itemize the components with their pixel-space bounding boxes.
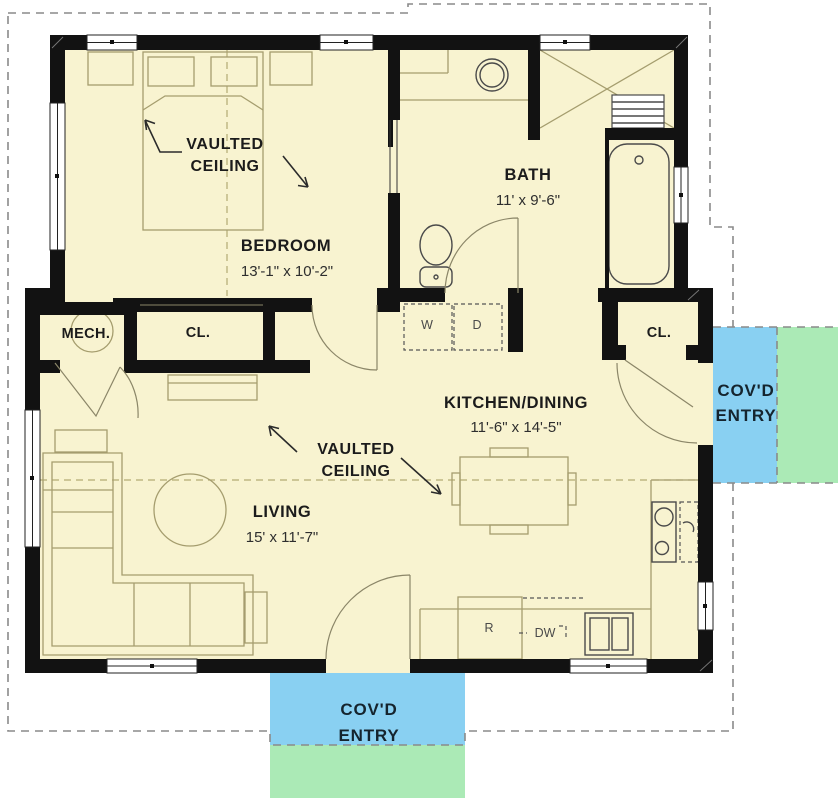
kitchen-dining-dims: 11'-6" x 14'-5": [470, 419, 561, 436]
dishwasher-label: DW: [535, 626, 556, 640]
covd-entry-bottom-label-2: ENTRY: [339, 726, 400, 745]
covered-entry-right: [713, 327, 838, 483]
window: [540, 35, 590, 50]
window: [50, 103, 65, 250]
bedroom-closet-label: CL.: [186, 325, 211, 341]
entry-opening-right: [698, 363, 713, 445]
window: [674, 167, 688, 223]
entry-closet-label: CL.: [647, 325, 672, 341]
living-label: LIVING: [253, 503, 312, 521]
entry-bottom-green-pad: [270, 745, 465, 798]
bath-dims: 11' x 9'-6": [496, 192, 560, 209]
entry-right-green-pad: [777, 327, 838, 483]
vaulted-ceiling-living-label: VAULTED: [317, 441, 394, 458]
bedroom-dims: 13'-1" x 10'-2": [241, 263, 333, 280]
window: [107, 659, 197, 673]
window: [698, 582, 713, 630]
floor-plan: VAULTED CEILING BEDROOM 13'-1" x 10'-2" …: [0, 0, 839, 800]
floor-upper: [50, 35, 688, 302]
floor-plan-svg: VAULTED CEILING BEDROOM 13'-1" x 10'-2" …: [0, 0, 839, 800]
window: [320, 35, 373, 50]
bath-label: BATH: [504, 166, 551, 184]
entry-right-porch: [713, 327, 777, 483]
entry-opening-bottom: [326, 659, 410, 673]
washer-label: W: [421, 318, 433, 332]
window: [87, 35, 137, 50]
refrigerator-label: R: [484, 621, 493, 635]
window: [570, 659, 647, 673]
vaulted-ceiling-bedroom-label-2: CEILING: [190, 158, 259, 175]
covd-entry-bottom-label: COV'D: [340, 700, 397, 719]
window: [25, 410, 40, 547]
covd-entry-right-label: COV'D: [717, 381, 774, 400]
vaulted-ceiling-bedroom-label: VAULTED: [186, 136, 263, 153]
covd-entry-right-label-2: ENTRY: [716, 406, 777, 425]
vaulted-ceiling-living-label-2: CEILING: [321, 463, 390, 480]
kitchen-dining-label: KITCHEN/DINING: [444, 394, 588, 412]
living-dims: 15' x 11'-7": [246, 529, 318, 546]
dryer-label: D: [472, 318, 481, 332]
mech-label: MECH.: [62, 326, 111, 342]
bedroom-label: BEDROOM: [241, 237, 331, 255]
